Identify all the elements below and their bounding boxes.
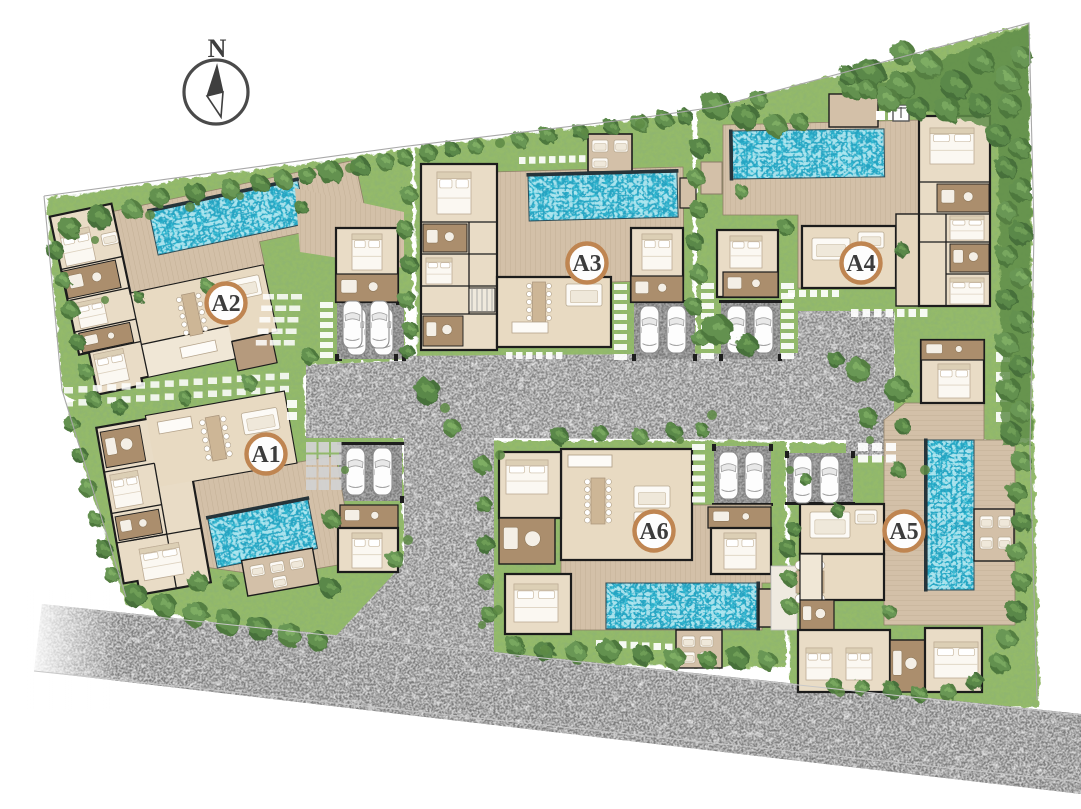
svg-text:A2: A2 — [211, 291, 240, 317]
svg-text:A6: A6 — [639, 519, 668, 545]
svg-text:A4: A4 — [846, 251, 875, 277]
svg-text:A1: A1 — [251, 442, 280, 468]
svg-text:A5: A5 — [889, 519, 918, 545]
svg-text:A3: A3 — [572, 251, 601, 277]
svg-text:N: N — [208, 34, 227, 63]
